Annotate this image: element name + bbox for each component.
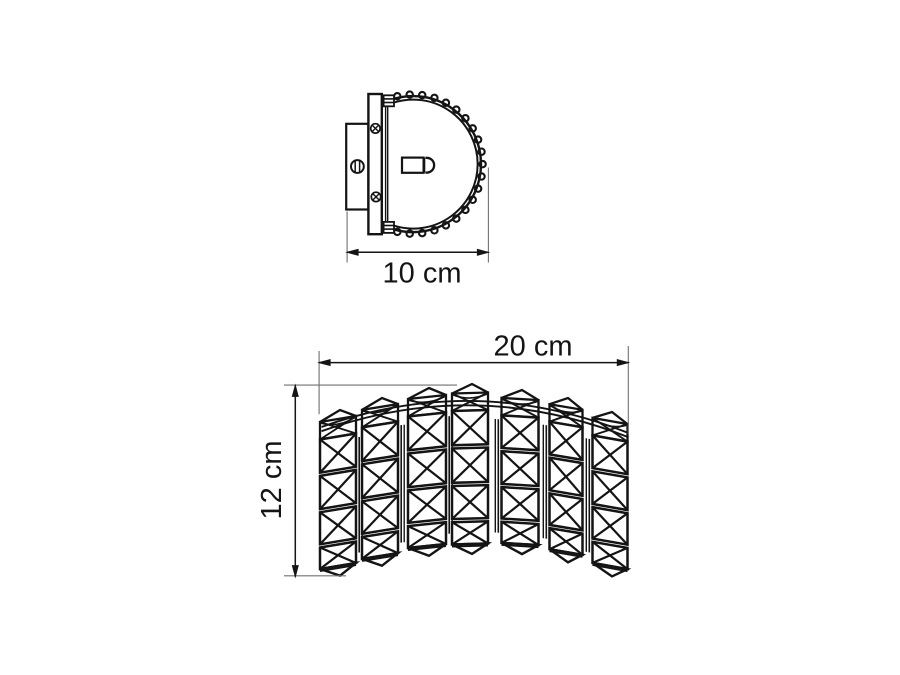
- svg-text:10 cm: 10 cm: [383, 258, 462, 290]
- svg-text:20 cm: 20 cm: [494, 330, 573, 362]
- svg-text:12 cm: 12 cm: [256, 441, 288, 520]
